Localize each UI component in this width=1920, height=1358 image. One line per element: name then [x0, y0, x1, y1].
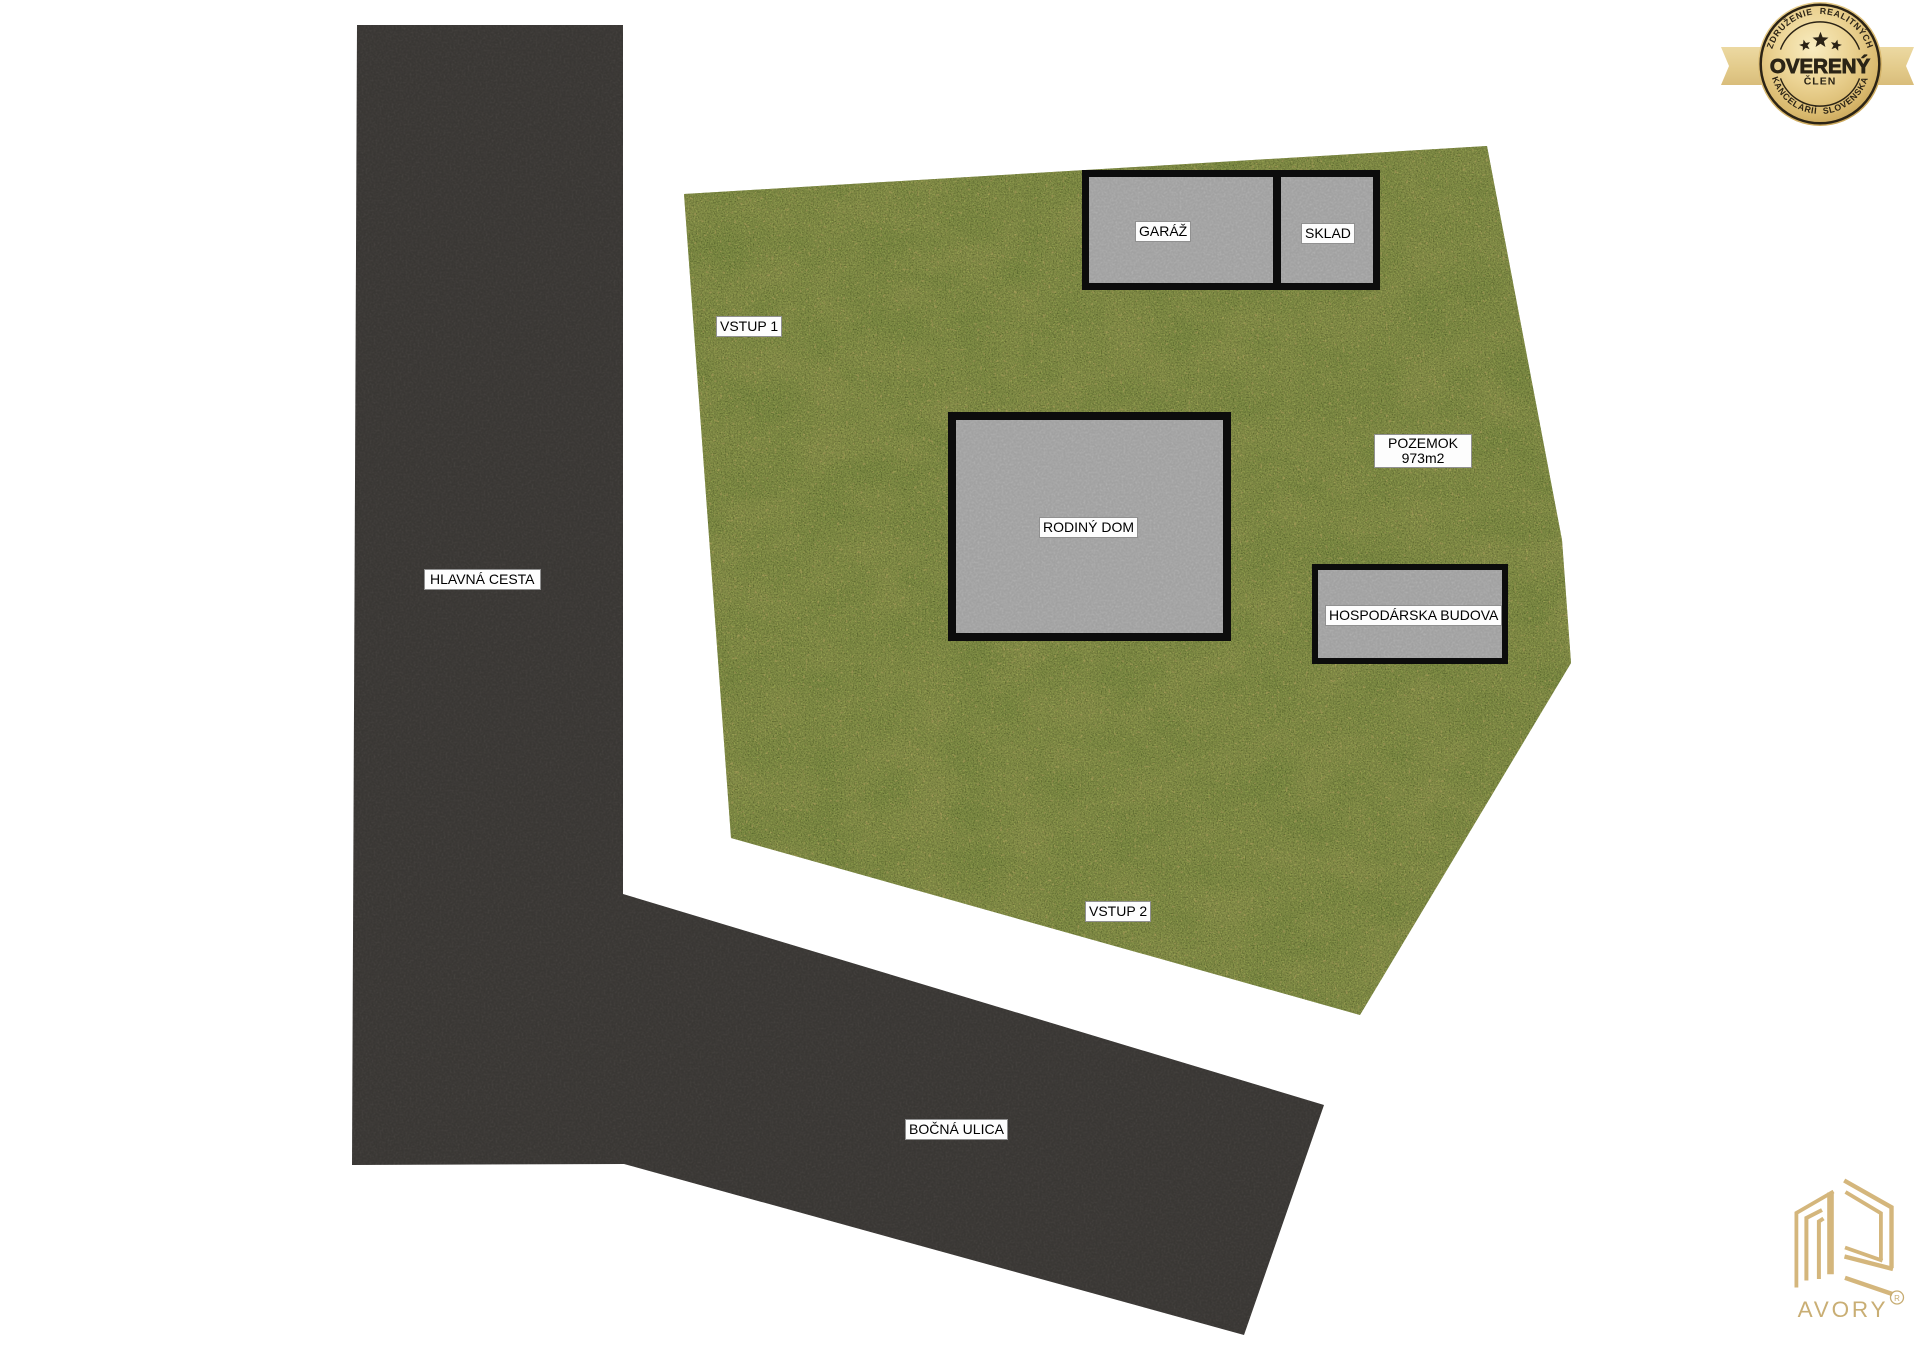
- svg-text:OVERENÝ: OVERENÝ: [1770, 54, 1871, 78]
- svg-text:ČLEN: ČLEN: [1804, 75, 1837, 88]
- svg-text:R: R: [1894, 1294, 1900, 1303]
- svg-text:AVORY: AVORY: [1798, 1297, 1889, 1322]
